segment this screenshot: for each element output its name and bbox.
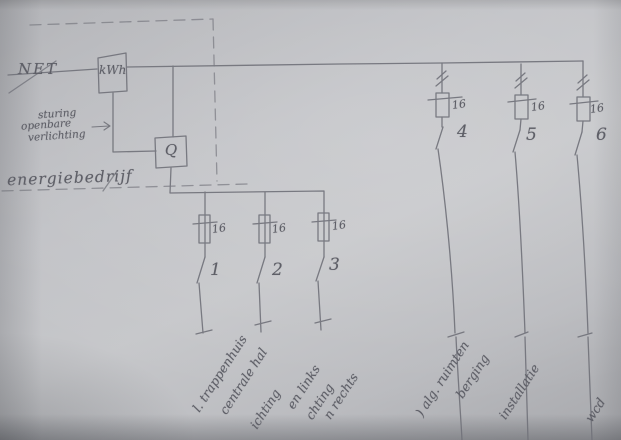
switch-symbol-3 <box>316 257 324 281</box>
wire-end-tick-1 <box>196 330 212 334</box>
branch-6-circuit <box>570 61 598 440</box>
net-label: NET <box>18 60 58 78</box>
switch-symbol-4 <box>436 127 443 149</box>
fuse-rating-4: 16 <box>451 97 467 112</box>
wire-end-tick-5 <box>515 332 528 337</box>
q-switch-symbol <box>155 66 324 257</box>
fuse-rating-1: 16 <box>211 221 227 236</box>
control-arrow-icon <box>92 122 110 130</box>
q-switch-label: Q <box>156 141 186 159</box>
wire-end-tick-3 <box>315 319 331 323</box>
switch-symbol-2 <box>257 257 265 283</box>
fuse-symbol-5 <box>515 95 528 119</box>
zone-boundary-dashed <box>0 19 247 191</box>
branch-number-2: 2 <box>272 260 283 280</box>
branch-number-4: 4 <box>457 122 468 142</box>
sub-bus-wire <box>170 168 324 257</box>
fuse-symbol-6 <box>577 97 590 121</box>
wire-end-tick-2 <box>255 321 271 325</box>
switch-symbol-5 <box>513 130 520 152</box>
branch-number-5: 5 <box>526 125 537 145</box>
branch-number-1: 1 <box>210 260 221 280</box>
fuse-rating-5: 16 <box>530 99 546 114</box>
fuse-symbol-4 <box>436 93 449 117</box>
hand-drawn-electrical-schematic: NET kWh Q sturing openbare verlichting e… <box>0 0 621 440</box>
fuse-rating-3: 16 <box>331 218 347 233</box>
branch-number-6: 6 <box>596 125 607 145</box>
switch-symbol-6 <box>575 132 582 155</box>
wire-end-tick-6 <box>578 333 592 337</box>
fuse-rating-2: 16 <box>271 221 287 236</box>
branch-number-3: 3 <box>329 255 340 275</box>
kwh-meter-label: kWh <box>99 63 126 77</box>
control-tap-wire <box>113 93 156 152</box>
switch-symbol-1 <box>197 257 205 283</box>
fuse-rating-6: 16 <box>589 101 605 116</box>
mains-supply-wire <box>8 61 583 93</box>
main-bus-wire <box>127 61 583 67</box>
